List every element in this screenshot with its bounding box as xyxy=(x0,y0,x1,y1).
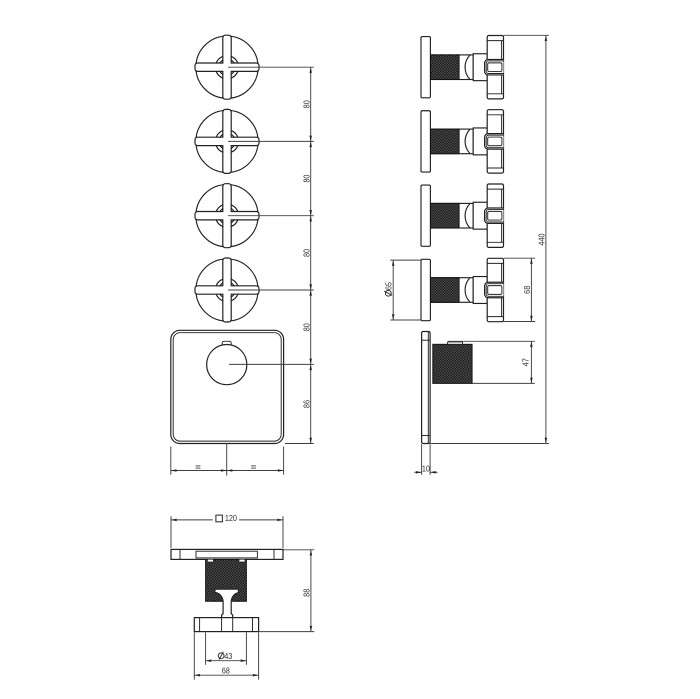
svg-text:86: 86 xyxy=(302,399,312,408)
svg-text:80: 80 xyxy=(302,100,312,109)
svg-text:68: 68 xyxy=(222,666,231,676)
svg-text:65: 65 xyxy=(384,282,394,291)
svg-text:440: 440 xyxy=(537,233,547,246)
svg-text:10: 10 xyxy=(422,464,431,474)
svg-text:80: 80 xyxy=(302,248,312,257)
svg-text:80: 80 xyxy=(302,323,312,332)
svg-text:88: 88 xyxy=(302,588,312,597)
svg-text:80: 80 xyxy=(302,174,312,183)
svg-text:47: 47 xyxy=(521,358,531,367)
svg-text:43: 43 xyxy=(224,652,233,662)
svg-text:68: 68 xyxy=(522,285,532,294)
svg-text:120: 120 xyxy=(225,514,238,524)
